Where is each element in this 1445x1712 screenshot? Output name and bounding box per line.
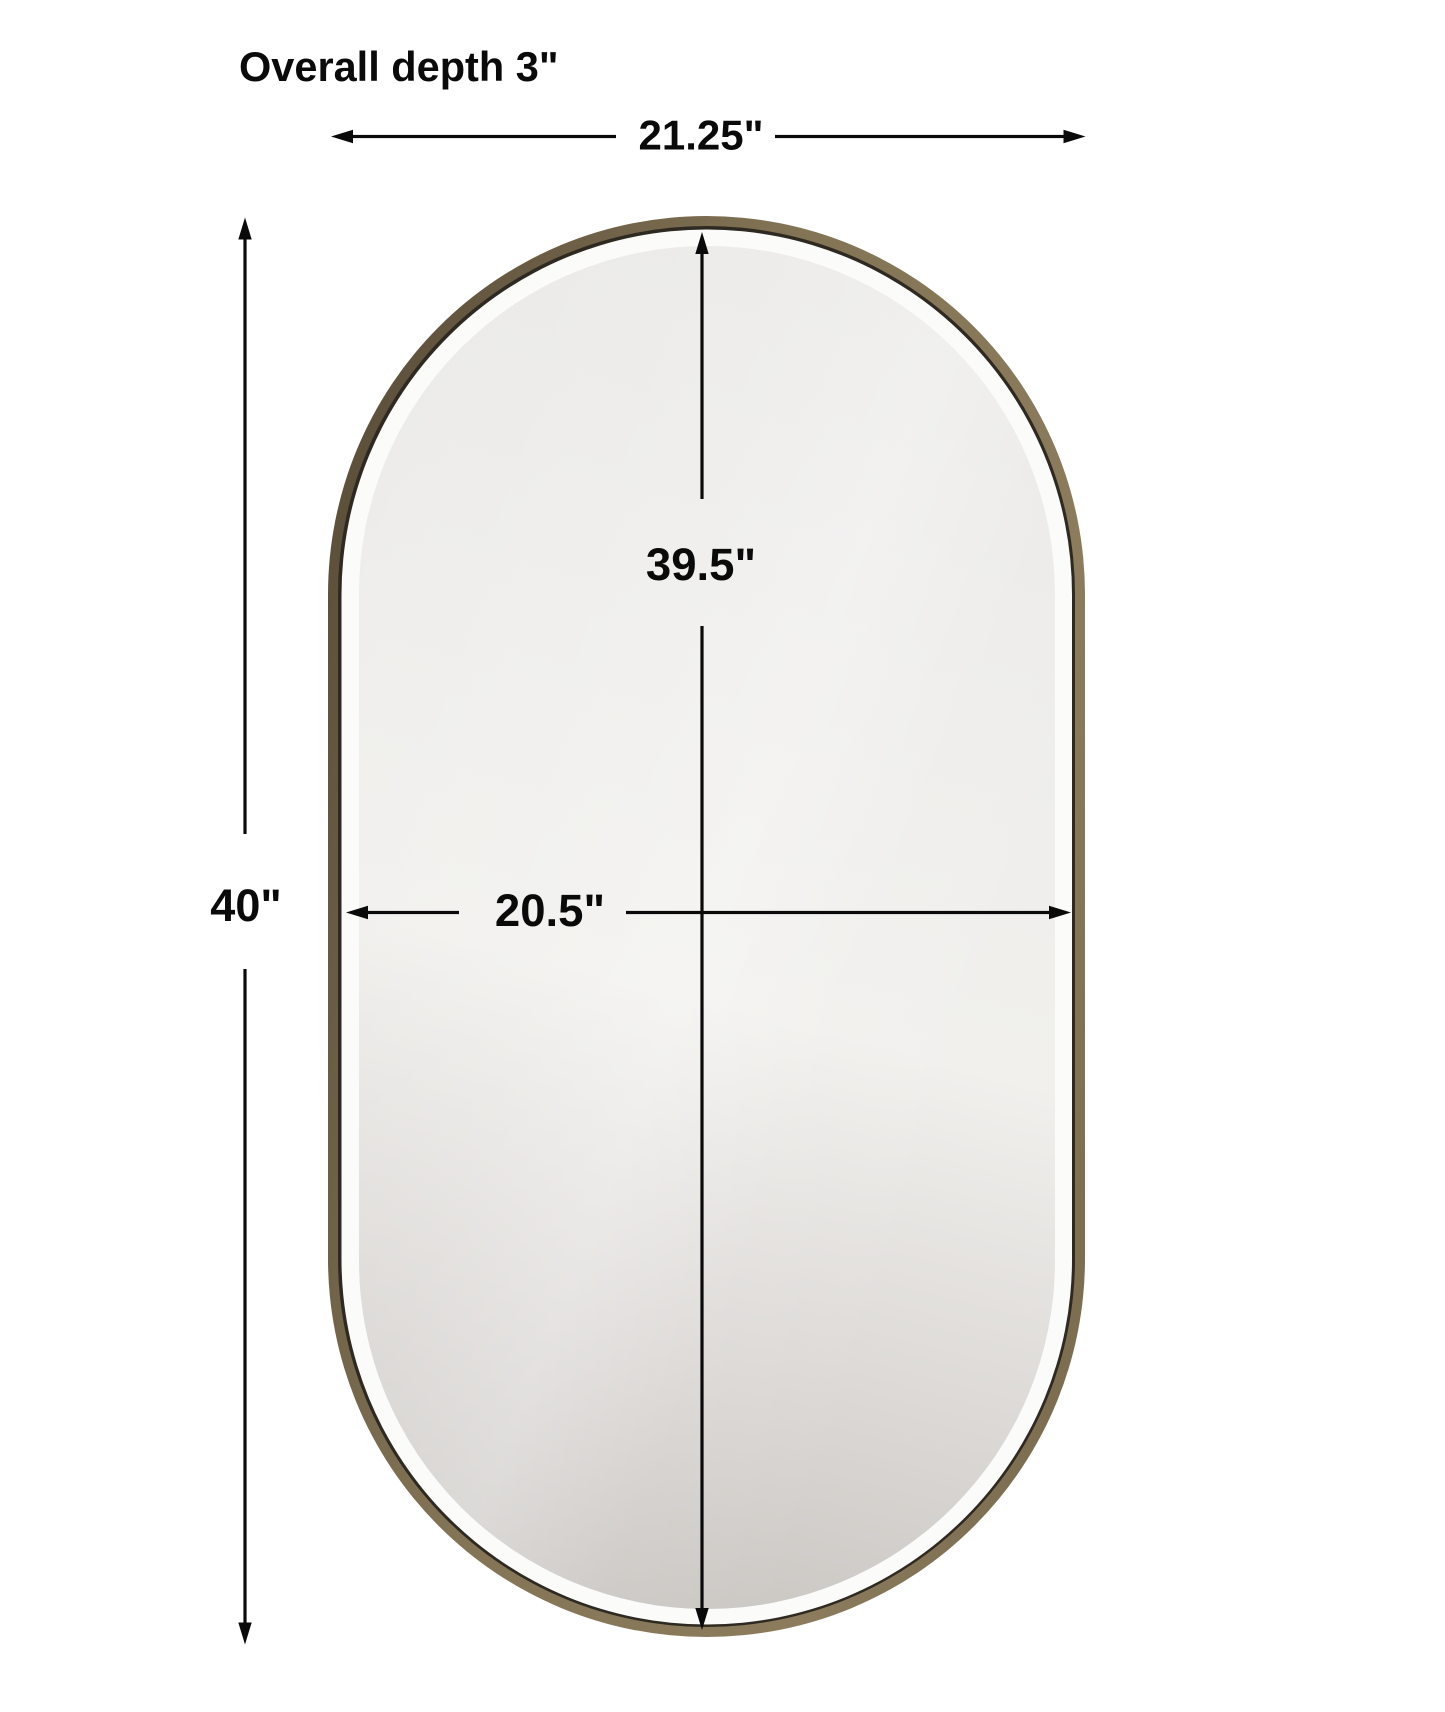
svg-text:20.5": 20.5" [495, 885, 605, 936]
svg-text:40": 40" [210, 880, 281, 931]
svg-text:21.25": 21.25" [638, 112, 763, 159]
svg-text:Overall depth 3": Overall depth 3" [239, 43, 559, 90]
svg-text:39.5": 39.5" [646, 539, 756, 590]
